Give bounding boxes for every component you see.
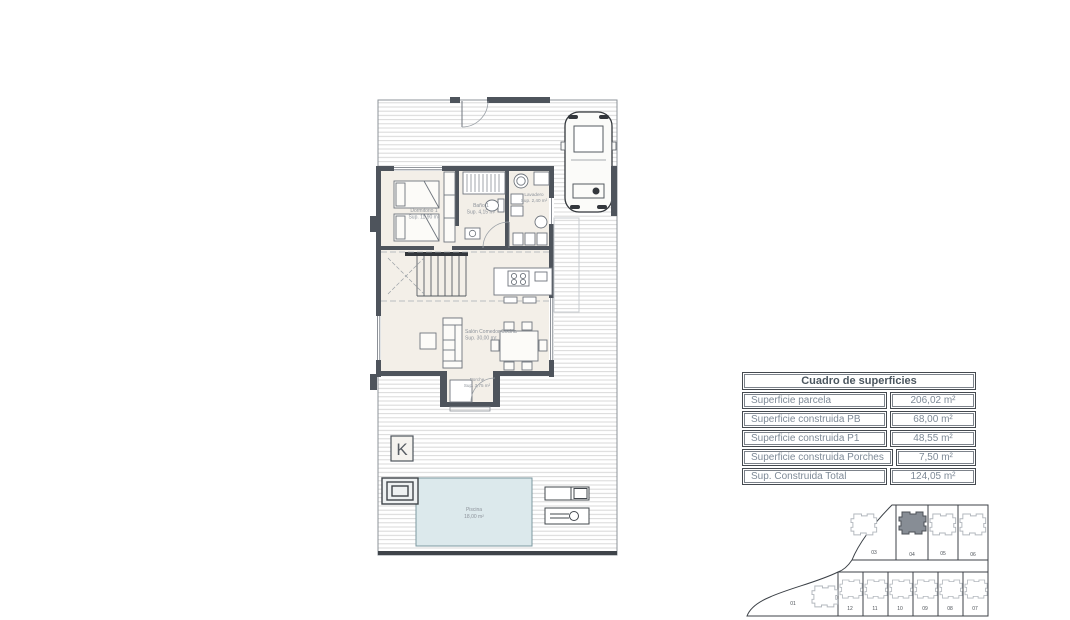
svg-text:07: 07 — [972, 606, 978, 612]
table-row: Superficie construida PB 68,00 m² — [742, 411, 976, 428]
sink-cabinet — [465, 228, 480, 239]
row-value: 68,00 m² — [892, 413, 974, 426]
sofa-icon — [443, 318, 462, 368]
svg-text:Lavadero: Lavadero — [524, 192, 544, 197]
svg-text:12: 12 — [847, 606, 853, 612]
table-row: Superficie construida Porches 7,50 m² — [742, 449, 976, 466]
row-value: 124,05 m² — [892, 470, 974, 483]
svg-text:Sup. 30,00 m²: Sup. 30,00 m² — [465, 336, 497, 342]
stool-icon — [523, 297, 536, 303]
kitchen-sink-icon — [535, 272, 547, 281]
svg-text:01: 01 — [790, 601, 796, 607]
brand-logo: K — [391, 436, 413, 461]
svg-text:Sup. 11,90 m²: Sup. 11,90 m² — [408, 215, 439, 221]
svg-text:10: 10 — [897, 606, 903, 612]
svg-text:Piscina: Piscina — [466, 507, 482, 513]
highlighted-house — [899, 512, 926, 534]
svg-text:Sup. 3,75 m²: Sup. 3,75 m² — [464, 383, 491, 388]
svg-text:04: 04 — [909, 552, 915, 558]
row-value: 7,50 m² — [898, 451, 974, 464]
dining-table-icon — [500, 331, 538, 361]
car-icon — [561, 112, 616, 212]
row-label: Superficie construida Porches — [744, 451, 891, 464]
svg-text:Sup. 4,15 m²: Sup. 4,15 m² — [467, 210, 496, 216]
svg-text:11: 11 — [872, 606, 877, 612]
surface-table: Cuadro de superficies Superficie parcela… — [742, 372, 976, 485]
pool-steps — [382, 478, 418, 504]
svg-text:08: 08 — [947, 606, 953, 612]
surface-table-header: Cuadro de superficies — [742, 372, 976, 390]
table-row: Sup. Construida Total 124,05 m² — [742, 468, 976, 485]
plot-bottom-wall — [378, 551, 617, 555]
svg-text:Salón Comedor Cocina: Salón Comedor Cocina — [465, 329, 517, 335]
row-label: Superficie construida PB — [744, 413, 885, 426]
site-plan: 03 04 05 06 12 11 10 09 08 07 01 — [747, 505, 988, 616]
row-value: 206,02 m² — [892, 394, 974, 407]
bedroom-label: Dormitorio 1 Sup. 11,90 m² — [408, 208, 439, 221]
svg-text:Porche: Porche — [470, 377, 485, 382]
table-row: Superficie construida P1 48,55 m² — [742, 430, 976, 447]
page: Dormitorio 1 Sup. 11,90 m² Baño 1 Sup. 4… — [0, 0, 1070, 620]
side-table-icon — [420, 333, 436, 349]
table-row: Superficie parcela 206,02 m² — [742, 392, 976, 409]
row-value: 48,55 m² — [892, 432, 974, 445]
boiler-icon — [534, 172, 549, 185]
pool-label: Piscina 18,00 m² — [464, 507, 484, 520]
cooktop-icon — [508, 271, 529, 286]
surface-table-title: Cuadro de superficies — [744, 374, 974, 388]
row-label: Superficie parcela — [744, 394, 885, 407]
svg-text:03: 03 — [871, 550, 877, 556]
row-label: Sup. Construida Total — [744, 470, 885, 483]
svg-text:09: 09 — [922, 606, 928, 612]
bedroom — [394, 172, 455, 242]
svg-text:18,00 m²: 18,00 m² — [464, 514, 484, 520]
drawing-canvas: Dormitorio 1 Sup. 11,90 m² Baño 1 Sup. 4… — [0, 0, 1070, 620]
svg-text:05: 05 — [940, 551, 946, 557]
svg-text:Sup. 2,40 m²: Sup. 2,40 m² — [521, 198, 548, 203]
laundry-sink-icon — [535, 216, 547, 228]
row-label: Superficie construida P1 — [744, 432, 885, 445]
floor-plan: Dormitorio 1 Sup. 11,90 m² Baño 1 Sup. 4… — [370, 97, 617, 555]
svg-text:06: 06 — [970, 552, 976, 558]
svg-text:K: K — [396, 440, 408, 459]
svg-text:Dormitorio 1: Dormitorio 1 — [410, 208, 437, 214]
svg-text:Baño 1: Baño 1 — [473, 203, 489, 209]
stool-icon — [504, 297, 517, 303]
